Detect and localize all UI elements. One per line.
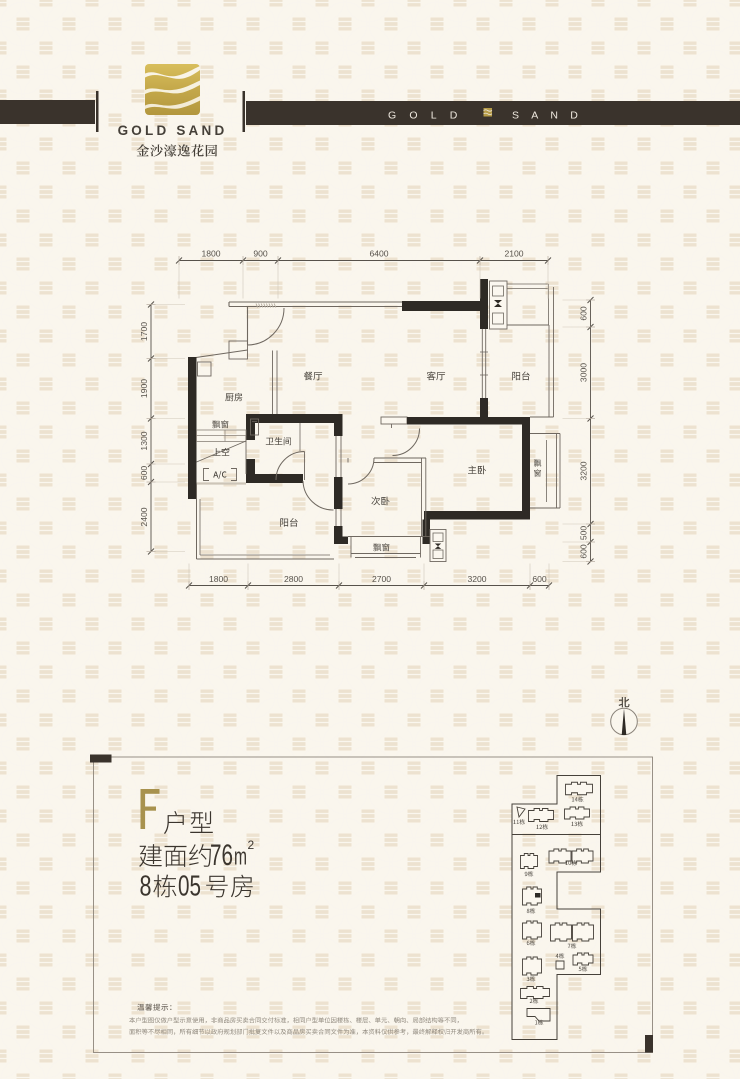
svg-text:600: 600 — [579, 306, 589, 321]
svg-text:GOLD SAND: GOLD SAND — [118, 123, 228, 138]
svg-text:2700: 2700 — [372, 574, 391, 584]
svg-text:76: 76 — [210, 839, 233, 872]
svg-text:1800: 1800 — [201, 249, 220, 259]
svg-text:2400: 2400 — [139, 507, 149, 526]
svg-text:1800: 1800 — [209, 574, 228, 584]
svg-text:SAND: SAND — [512, 110, 590, 122]
svg-text:6400: 6400 — [369, 249, 388, 259]
svg-text:2100: 2100 — [504, 249, 523, 259]
svg-text:05: 05 — [178, 871, 201, 903]
svg-text:3000: 3000 — [579, 363, 589, 382]
svg-text:1300: 1300 — [139, 431, 149, 450]
svg-text:500: 500 — [579, 526, 589, 541]
svg-text:600: 600 — [579, 544, 589, 559]
svg-text:2: 2 — [248, 838, 255, 852]
svg-text:600: 600 — [139, 466, 149, 481]
svg-text:m: m — [234, 844, 247, 871]
svg-text:3200: 3200 — [467, 574, 486, 584]
svg-text:3200: 3200 — [579, 461, 589, 480]
svg-text:GOLD: GOLD — [388, 110, 471, 122]
svg-text:900: 900 — [253, 249, 268, 259]
svg-text:1700: 1700 — [139, 322, 149, 341]
svg-text:2800: 2800 — [284, 574, 303, 584]
svg-text:8: 8 — [140, 871, 152, 903]
svg-text:600: 600 — [532, 574, 547, 584]
svg-text:1900: 1900 — [139, 379, 149, 398]
